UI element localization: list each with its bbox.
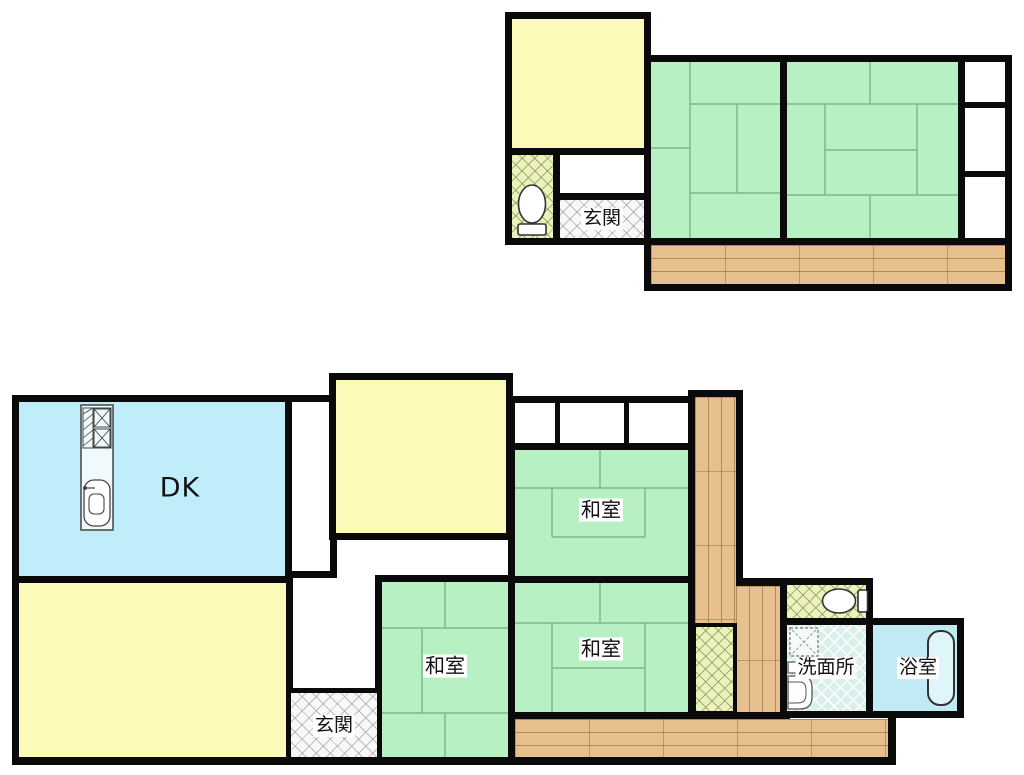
closet-divider <box>555 403 560 443</box>
2f-closet-column <box>958 55 1012 245</box>
wall <box>12 757 896 765</box>
wall <box>688 390 743 397</box>
dk-label: DK <box>158 472 203 503</box>
1f-genkan-label: 玄関 <box>313 715 355 737</box>
closet-divider <box>965 171 1005 177</box>
floor-plan-canvas: 玄関 <box>0 0 1024 775</box>
tatami-lines <box>787 62 958 238</box>
tatami-lines <box>651 62 780 238</box>
washitsu-ne-label: 和室 <box>579 499 623 522</box>
toilet-icon <box>818 584 870 618</box>
senmenjo-label: 洗面所 <box>795 657 856 679</box>
1f-closet-row <box>508 396 695 450</box>
wall <box>736 578 786 586</box>
washitsu-se-label: 和室 <box>579 638 623 661</box>
1f-western-room-center <box>329 373 513 540</box>
1f-western-room-southwest <box>12 576 293 765</box>
1f-dining-kitchen <box>12 395 292 583</box>
1f-engawa-veranda <box>515 719 888 757</box>
2f-engawa-veranda <box>644 238 1012 291</box>
wall <box>508 712 790 719</box>
2f-tatami-room-left <box>644 55 787 245</box>
washitsu-sw-label: 和室 <box>423 655 467 678</box>
yokushitsu-label: 浴室 <box>897 657 939 679</box>
washing-machine-icon <box>789 627 819 657</box>
closet-divider <box>965 102 1005 108</box>
1f-storage-hatch <box>692 623 737 715</box>
kitchen-unit-icon <box>80 404 114 531</box>
toilet-icon <box>513 172 553 236</box>
wall <box>736 390 743 586</box>
1f-corridor-extension <box>736 586 780 712</box>
2f-western-room <box>505 12 651 155</box>
2f-tatami-room-right <box>780 55 965 245</box>
2f-genkan-label: 玄関 <box>581 208 623 230</box>
closet-divider <box>624 403 629 443</box>
